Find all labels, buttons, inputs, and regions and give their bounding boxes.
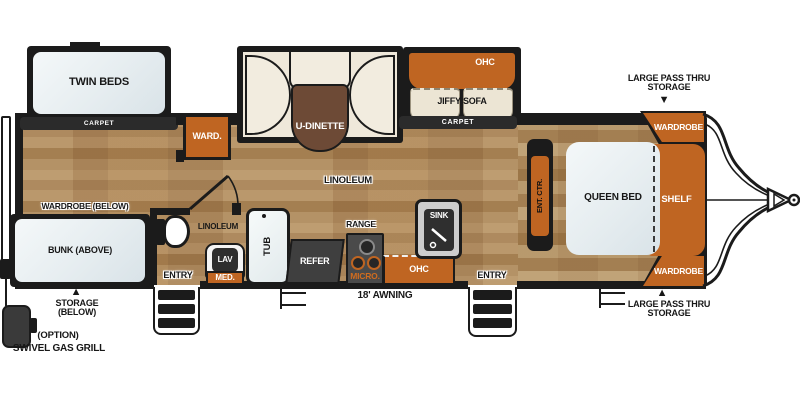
step-tread [158, 318, 195, 328]
swivel-gas-grill-shape [2, 305, 31, 348]
refer-label: REFER [300, 257, 330, 266]
tub-label: TUB [263, 237, 273, 256]
jiffy-sofa-label: JIFFY SOFA [408, 97, 516, 106]
ward-cabinet: WARD. [183, 114, 231, 160]
bunk: BUNK (ABOVE) [15, 219, 145, 282]
queen-bed-label: QUEEN BED [584, 193, 642, 204]
pass-thru-bottom-arrow: ▲ [652, 288, 672, 300]
storage-below-arrow: ▲ [66, 287, 86, 299]
step-tread [473, 290, 512, 300]
swivel-gas-grill-label: SWIVEL GAS GRILL [0, 344, 118, 355]
tub: TUB [246, 208, 290, 285]
micro-knob-left [351, 256, 365, 270]
sink-basin: SINK [424, 209, 454, 251]
rear-entry-label: ENTRY [156, 271, 200, 280]
kitchen-ohc-label: OHC [409, 265, 428, 274]
bed-foot-dashed-line [653, 146, 655, 252]
lav-basin: LAV [212, 248, 238, 272]
bath-top-wall [150, 208, 190, 215]
front-entry-steps [468, 287, 517, 337]
step-tread [473, 304, 512, 314]
wardrobe-bottom-label: WARDROBE [654, 267, 703, 276]
sofa-carpet-strip: CARPET [399, 116, 517, 129]
bath-door-stub [232, 203, 241, 215]
kitchen-ohc: OHC [383, 255, 455, 285]
step-tread [473, 318, 512, 328]
u-dinette-label: U-DINETTE [296, 122, 345, 132]
wardrobe-top-label: WARDROBE [654, 123, 703, 132]
wardrobe-below-label: WARDROBE (BELOW) [25, 202, 145, 211]
pass-thru-top-label: LARGE PASS THRU STORAGE [624, 74, 714, 93]
micro-knob-right [367, 256, 381, 270]
ent-ctr-panel: ENT. CTR. [531, 156, 549, 236]
rear-entry-steps [153, 287, 200, 335]
bunk-label: BUNK (ABOVE) [48, 246, 112, 255]
range-label: RANGE [338, 220, 384, 229]
refer: REFER [285, 239, 345, 284]
twin-beds: TWIN BEDS [33, 52, 165, 114]
toilet-bowl [163, 215, 190, 248]
step-tread [158, 304, 195, 314]
range-burner [359, 239, 375, 255]
med-cabinet: MED. [206, 271, 244, 285]
micro-label: MICRO. [348, 272, 382, 281]
u-dinette-table: U-DINETTE [291, 84, 349, 152]
ent-ctr-label: ENT. CTR. [536, 179, 544, 213]
twin-beds-slide-notch [70, 42, 100, 48]
bath-linoleum-label: LINOLEUM [190, 223, 246, 231]
queen-bed: QUEEN BED [566, 142, 660, 255]
rear-carpet-label: CARPET [84, 120, 114, 127]
lav-label: LAV [218, 256, 233, 264]
range-micro-unit: MICRO. [346, 233, 384, 285]
rear-carpet-strip: CARPET [20, 117, 178, 130]
med-label: MED. [215, 274, 234, 282]
pass-thru-bottom-label: LARGE PASS THRU STORAGE [622, 300, 716, 319]
shelf-label: SHELF [661, 195, 691, 205]
sofa-ohc-label: OHC [460, 58, 510, 67]
main-linoleum-label: LINOLEUM [315, 176, 381, 186]
sofa-carpet-label: CARPET [442, 119, 474, 126]
ward-label: WARD. [193, 132, 222, 141]
twin-beds-label: TWIN BEDS [69, 77, 129, 89]
faucet-icon [424, 209, 454, 251]
tub-drain-dot [262, 214, 266, 218]
front-entry-label: ENTRY [470, 271, 514, 280]
option-label: (OPTION) [25, 331, 91, 341]
awning-label: 18' AWNING [350, 291, 420, 302]
pass-thru-top-arrow: ▼ [654, 95, 674, 107]
floorplan-canvas: TWIN BEDS CARPET WARD. U-DINETTE OHC JIF… [0, 0, 800, 400]
step-tread [158, 290, 195, 300]
storage-below-label: STORAGE (BELOW) [41, 299, 113, 318]
